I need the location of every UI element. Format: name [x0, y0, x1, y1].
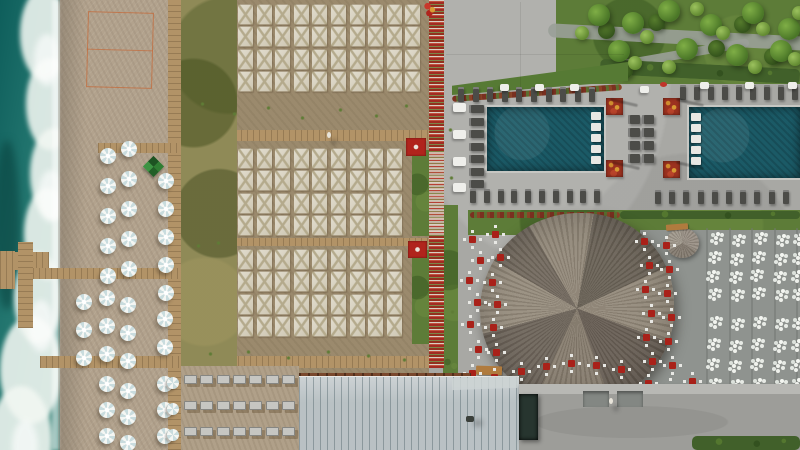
lounger-row-below-west-0-7 [567, 189, 573, 203]
lounger-mid-pools-3-1 [642, 154, 654, 163]
cafe-table-west-11 [493, 349, 500, 356]
banquet-chair-cluster-7 [735, 293, 739, 297]
tent-block-middle-2-6 [350, 193, 365, 214]
red-platform-upper [406, 138, 426, 156]
beach-umbrella-25 [157, 339, 173, 355]
tent-block-middle-1-2 [275, 170, 290, 191]
cafe-table-south-4 [618, 366, 625, 373]
cafe-table-west-5 [489, 279, 496, 286]
beach-lounger-1-4 [249, 401, 262, 410]
tent-block-north-3-5 [331, 71, 346, 92]
tent-block-middle-2-5 [331, 193, 346, 214]
shrub-1 [232, 112, 237, 116]
poolside-umbrella-west-0 [453, 103, 466, 112]
shrub-6 [404, 104, 409, 108]
lawn-band-hedge [620, 211, 800, 219]
tent-block-middle-1-3 [294, 170, 309, 191]
beach-umbrella-21 [120, 297, 136, 313]
pool-east [689, 107, 800, 178]
lounger-row-top-west-0-4 [516, 87, 522, 102]
banquet-chair-cluster-10 [754, 273, 758, 277]
lawn-right-of-tents-a [412, 150, 430, 236]
cafe-table-east-5 [664, 290, 671, 297]
tent-block-middle-3-1 [257, 215, 272, 236]
banquet-chair-cluster-3 [712, 292, 716, 296]
lounger-row-top-west-0-6 [546, 87, 552, 102]
tent-block-south-3-5 [331, 316, 346, 337]
tent-block-north-0-4 [312, 4, 327, 25]
tree-canopy-light-3 [716, 26, 730, 40]
lounger-row-top-west-0-7 [560, 87, 566, 102]
beach-umbrella-9 [121, 261, 137, 277]
tent-block-middle-0-7 [368, 148, 383, 169]
tent-block-middle-1-8 [387, 170, 402, 191]
shrub-4 [338, 108, 343, 112]
banquet-chair-cluster-37 [795, 343, 799, 347]
banquet-chair-cluster-14 [777, 275, 781, 279]
plaza-joint-h [446, 54, 624, 55]
beach-lounger-0-2 [217, 375, 230, 384]
cafe-table-east-10 [649, 358, 656, 365]
banquet-chair-cluster-5 [734, 257, 738, 261]
lounger-row-below-west-0-5 [539, 189, 545, 203]
banquet-chair-cluster-25 [733, 344, 737, 348]
tent-block-middle-2-2 [275, 193, 290, 214]
beach-umbrella-0 [100, 148, 116, 164]
banquet-chair-cluster-20 [713, 320, 717, 324]
tent-block-south-1-0 [238, 271, 253, 292]
pool-east-shelf-loungers-2-0 [691, 135, 701, 143]
lounger-row-below-west-0-2 [498, 189, 504, 203]
shrub-5 [374, 114, 379, 118]
lounger-mid-pools-0-1 [642, 115, 654, 124]
banquet-chair-cluster-11 [756, 291, 760, 295]
beach-lounger-2-5 [266, 427, 279, 436]
flowerbed-light-mid [429, 152, 444, 235]
tent-block-south-1-1 [257, 271, 272, 292]
beach-umbrella-8 [121, 231, 137, 247]
lounger-col-west-4-0 [469, 155, 484, 163]
cafe-table-east-11 [669, 362, 676, 369]
shrub-0 [200, 102, 205, 106]
tent-block-north-2-3 [294, 49, 309, 70]
pool-west-shelf-loungers-2-0 [591, 134, 601, 142]
pool-umbrella-top-1 [535, 84, 544, 91]
lounger-row-below-east-0-3 [698, 190, 704, 204]
pier-head [0, 251, 15, 289]
cafe-table-east-8 [643, 334, 650, 341]
pier-walkway [18, 242, 33, 328]
tent-block-north-2-4 [312, 49, 327, 70]
tent-block-north-2-5 [331, 49, 346, 70]
tree-canopy-light-7 [662, 60, 676, 74]
lounger-row-top-east-0-7 [778, 85, 784, 100]
tree-canopy-light-4 [756, 22, 770, 36]
beach-umbrella-16 [76, 322, 92, 338]
lounger-mid-pools-2-1 [642, 141, 654, 150]
banquet-chair-cluster-29 [755, 342, 759, 346]
cafe-table-east-6 [648, 310, 655, 317]
tent-block-north-1-8 [387, 26, 402, 47]
shrub-11 [366, 354, 371, 358]
beach-lounger-2-2 [217, 427, 230, 436]
tent-block-middle-3-8 [387, 215, 402, 236]
tree-canopy-0 [588, 4, 610, 26]
tent-block-middle-1-1 [257, 170, 272, 191]
tent-block-north-1-4 [312, 26, 327, 47]
tent-block-south-2-2 [275, 294, 290, 315]
banquet-chair-cluster-8 [758, 236, 762, 240]
tent-block-south-0-5 [331, 249, 346, 270]
tent-block-north-1-0 [238, 26, 253, 47]
tent-block-middle-3-3 [294, 215, 309, 236]
tent-block-north-1-6 [350, 26, 365, 47]
tent-block-south-2-3 [294, 294, 309, 315]
beach-lounger-1-0 [184, 401, 197, 410]
tent-block-south-1-5 [331, 271, 346, 292]
lounger-mid-pools-2-0 [628, 141, 640, 150]
tent-block-north-2-9 [405, 49, 420, 70]
pool-east-shelf-loungers-3-0 [691, 146, 701, 154]
cafe-table-west-7 [494, 301, 501, 308]
tent-block-north-2-6 [350, 49, 365, 70]
tree-canopy-1 [622, 12, 644, 34]
beach-lounger-2-0 [184, 427, 197, 436]
pool-umbrella-top-6 [788, 82, 797, 89]
pool-west-shelf-loungers-3-0 [591, 145, 601, 153]
tent-block-north-0-6 [350, 4, 365, 25]
shrub-12 [402, 358, 407, 362]
banquet-chair-cluster-4 [736, 238, 740, 242]
tree-canopy-light-6 [628, 56, 642, 70]
lounger-mid-pools-3-0 [628, 154, 640, 163]
lounger-row-below-west-0-8 [580, 189, 586, 203]
lounger-row-below-east-0-5 [726, 190, 732, 204]
banquet-chair-cluster-6 [733, 275, 737, 279]
beach-umbrella-6 [121, 171, 137, 187]
lawn-left-of-tents [181, 0, 237, 368]
lounger-row-below-east-0-9 [783, 190, 789, 204]
lounger-col-west-1-0 [469, 118, 484, 126]
tent-block-middle-2-4 [312, 193, 327, 214]
lounger-row-below-west-0-4 [525, 189, 531, 203]
banquet-chair-cluster-38 [794, 363, 798, 367]
beach-lounger-0-5 [266, 375, 279, 384]
shrub-8 [246, 350, 251, 354]
beach-umbrella-26 [99, 376, 115, 392]
dumpster [519, 394, 538, 440]
beach-umbrella-18 [99, 290, 115, 306]
banquet-chair-cluster-33 [777, 344, 781, 348]
pool-west-shelf-loungers-0-0 [591, 112, 601, 120]
tent-block-north-2-8 [387, 49, 402, 70]
shoreline [52, 0, 59, 450]
beach-lounger-1-2 [217, 401, 230, 410]
tent-block-south-0-2 [275, 249, 290, 270]
shrub-17 [450, 310, 455, 314]
banquet-chair-cluster-18 [795, 274, 799, 278]
lounger-row-below-east-0-4 [712, 190, 718, 204]
tent-block-north-1-9 [405, 26, 420, 47]
lounger-row-top-east-0-3 [722, 85, 728, 100]
banquet-chair-cluster-26 [732, 364, 736, 368]
beach-umbrella-edge-1 [167, 403, 179, 415]
tent-block-north-3-2 [275, 71, 290, 92]
beach-umbrella-3 [100, 238, 116, 254]
beach-lounger-0-0 [184, 375, 197, 384]
tent-block-south-3-6 [350, 316, 365, 337]
banquet-chair-cluster-17 [796, 256, 800, 260]
tent-block-north-3-0 [238, 71, 253, 92]
lawn-right-of-tents-b [412, 250, 430, 344]
cafe-table-south-3 [593, 362, 600, 369]
tent-block-middle-1-0 [238, 170, 253, 191]
beach-umbrella-14 [158, 285, 174, 301]
tent-block-north-3-9 [405, 71, 420, 92]
tent-block-north-1-5 [331, 26, 346, 47]
tree-canopy-5 [778, 18, 800, 40]
tent-block-south-3-3 [294, 316, 309, 337]
poolside-umbrella-west-2 [453, 157, 466, 166]
shrub-3 [300, 116, 305, 120]
tent-block-middle-3-2 [275, 215, 290, 236]
wet-sand [58, 0, 86, 450]
tent-block-south-2-4 [312, 294, 327, 315]
beach-lounger-1-1 [200, 401, 213, 410]
banquet-chair-cluster-2 [710, 274, 714, 278]
banquet-chair-cluster-12 [780, 238, 784, 242]
banquet-chair-cluster-36 [796, 321, 800, 325]
tent-block-middle-3-6 [350, 215, 365, 236]
tent-block-middle-3-0 [238, 215, 253, 236]
shrub-14 [216, 241, 221, 245]
person-1 [609, 398, 613, 404]
lounger-col-west-2-0 [469, 130, 484, 138]
beach-umbrella-4 [100, 268, 116, 284]
beach-lounger-2-6 [282, 427, 295, 436]
tent-block-south-1-4 [312, 271, 327, 292]
cafe-table-east-3 [666, 266, 673, 273]
beach-lounger-0-6 [282, 375, 295, 384]
tree-canopy-light-0 [575, 26, 589, 40]
lounger-col-west-6-0 [469, 180, 484, 188]
poolside-umbrella-west-3 [453, 183, 466, 192]
tent-block-middle-2-1 [257, 193, 272, 214]
beach-umbrella-11 [158, 201, 174, 217]
tent-block-middle-1-4 [312, 170, 327, 191]
lounger-row-below-west-0-1 [484, 189, 490, 203]
tent-block-middle-0-6 [350, 148, 365, 169]
beach-lounger-0-4 [249, 375, 262, 384]
tent-block-middle-2-0 [238, 193, 253, 214]
tent-block-north-0-5 [331, 4, 346, 25]
lounger-col-west-3-0 [469, 143, 484, 151]
lounger-row-top-east-0-0 [680, 85, 686, 100]
beach-umbrella-13 [158, 257, 174, 273]
tent-block-north-1-2 [275, 26, 290, 47]
banquet-chair-cluster-28 [757, 320, 761, 324]
beach-umbrella-10 [158, 173, 174, 189]
tent-block-south-3-1 [257, 316, 272, 337]
tent-block-middle-1-7 [368, 170, 383, 191]
pool-east-shelf-loungers-1-0 [691, 124, 701, 132]
banquet-chair-cluster-9 [756, 255, 760, 259]
lounger-row-below-east-0-6 [740, 190, 746, 204]
pool-umbrella-top-4 [700, 82, 709, 89]
banquet-chair-cluster-13 [778, 257, 782, 261]
tent-block-south-2-0 [238, 294, 253, 315]
tent-block-south-0-1 [257, 249, 272, 270]
tent-block-south-3-2 [275, 316, 290, 337]
beach-umbrella-29 [120, 383, 136, 399]
cafe-table-west-2 [477, 257, 484, 264]
lounger-row-top-west-0-1 [473, 87, 479, 102]
terrace-hedge [692, 436, 800, 450]
tent-block-south-2-8 [387, 294, 402, 315]
tree-canopy-4 [742, 2, 764, 24]
beach-umbrella-15 [76, 294, 92, 310]
tent-block-north-0-1 [257, 4, 272, 25]
tent-block-north-0-9 [405, 4, 420, 25]
tent-block-north-1-3 [294, 26, 309, 47]
tent-block-north-0-0 [238, 4, 253, 25]
cafe-table-west-6 [474, 299, 481, 306]
lounger-row-below-east-0-7 [754, 190, 760, 204]
tent-block-middle-0-4 [312, 148, 327, 169]
cafe-table-east-9 [665, 338, 672, 345]
shrub-16 [449, 176, 454, 180]
tent-block-north-2-2 [275, 49, 290, 70]
flowerbed-top-bloom [424, 2, 436, 16]
tent-block-north-0-2 [275, 4, 290, 25]
tent-block-south-1-8 [387, 271, 402, 292]
tent-block-south-1-3 [294, 271, 309, 292]
beach-umbrella-12 [158, 229, 174, 245]
service-bench [476, 366, 502, 376]
beach-lounger-2-3 [233, 427, 246, 436]
tent-block-north-3-4 [312, 71, 327, 92]
beach-umbrella-edge-0 [167, 377, 179, 389]
tree-canopy-light-8 [748, 60, 762, 74]
tent-block-north-3-1 [257, 71, 272, 92]
cafe-table-south-2 [568, 360, 575, 367]
lounger-row-below-east-0-0 [655, 190, 661, 204]
red-platform-lower [408, 241, 427, 258]
beach-lounger-1-5 [266, 401, 279, 410]
lane-curb-0 [706, 228, 708, 392]
cafe-table-west-3 [497, 254, 504, 261]
person-0 [327, 132, 331, 138]
banquet-chair-cluster-1 [712, 255, 716, 259]
pool-umbrella-top-5 [745, 82, 754, 89]
lounger-row-below-west-0-0 [470, 189, 476, 203]
beach-umbrella-31 [120, 435, 136, 450]
beach-umbrella-28 [99, 428, 115, 444]
banquet-chair-cluster-0 [714, 236, 718, 240]
cafe-table-east-0 [641, 238, 648, 245]
tent-block-middle-0-3 [294, 148, 309, 169]
cafe-table-west-8 [467, 321, 474, 328]
roof-vent [466, 416, 474, 422]
tent-block-north-0-8 [387, 4, 402, 25]
tent-block-south-0-7 [368, 249, 383, 270]
lounger-row-below-east-0-2 [683, 190, 689, 204]
resort-aerial-photo [0, 0, 800, 450]
cafe-table-east-2 [646, 262, 653, 269]
pool-west-shelf-loungers-4-0 [591, 156, 601, 164]
lounger-row-below-west-0-9 [594, 189, 600, 203]
cafe-table-east-7 [668, 314, 675, 321]
tent-block-middle-1-5 [331, 170, 346, 191]
tent-block-middle-0-0 [238, 148, 253, 169]
tent-block-middle-3-4 [312, 215, 327, 236]
tent-block-middle-0-5 [331, 148, 346, 169]
tent-block-south-0-0 [238, 249, 253, 270]
lawn-by-building [443, 354, 458, 374]
beach-umbrella-22 [120, 325, 136, 341]
lounger-row-top-west-0-2 [487, 87, 493, 102]
tent-block-north-1-7 [368, 26, 383, 47]
beach-lounger-2-4 [249, 427, 262, 436]
metal-roof-ridge [452, 376, 518, 390]
beach-umbrella-edge-2 [167, 429, 179, 441]
tree-canopy-2 [658, 0, 680, 22]
tent-block-north-2-0 [238, 49, 253, 70]
tent-block-south-0-6 [350, 249, 365, 270]
lounger-row-below-west-0-3 [511, 189, 517, 203]
poolside-umbrella-west-1 [453, 130, 466, 139]
beach-umbrella-19 [99, 318, 115, 334]
pool-umbrella-top-2 [570, 84, 579, 91]
lounger-col-west-0-0 [469, 105, 484, 113]
tent-block-middle-1-6 [350, 170, 365, 191]
flower-pot [660, 82, 667, 87]
tree-canopy-light-2 [690, 2, 704, 16]
beach-umbrella-27 [99, 402, 115, 418]
lounger-row-below-east-0-1 [669, 190, 675, 204]
tent-block-south-3-4 [312, 316, 327, 337]
pool-west-shelf-loungers-1-0 [591, 123, 601, 131]
tent-block-south-3-0 [238, 316, 253, 337]
lounger-row-top-west-0-0 [458, 87, 464, 102]
pool-west [487, 107, 604, 171]
shrub-13 [196, 244, 201, 248]
shrub-10 [326, 350, 331, 354]
cafe-table-west-9 [490, 324, 497, 331]
tent-block-south-2-5 [331, 294, 346, 315]
tent-block-north-3-3 [294, 71, 309, 92]
cafe-table-east-4 [642, 286, 649, 293]
lounger-col-west-5-0 [469, 168, 484, 176]
pool-umbrella-top-3 [640, 86, 649, 93]
lounger-row-top-west-0-9 [589, 87, 595, 102]
beach-lounger-0-3 [233, 375, 246, 384]
cafe-table-west-0 [469, 236, 476, 243]
beach-umbrella-17 [76, 350, 92, 366]
tent-block-south-3-7 [368, 316, 383, 337]
tent-block-north-3-6 [350, 71, 365, 92]
tent-block-north-3-8 [387, 71, 402, 92]
cafe-table-south-0 [518, 368, 525, 375]
tent-block-south-2-6 [350, 294, 365, 315]
terrace-steps-0 [583, 391, 609, 407]
volleyball-court [86, 11, 154, 89]
tent-block-north-2-7 [368, 49, 383, 70]
lounger-row-below-east-0-8 [769, 190, 775, 204]
beach-umbrella-24 [157, 311, 173, 327]
shrub-2 [266, 106, 271, 110]
tent-block-south-0-3 [294, 249, 309, 270]
